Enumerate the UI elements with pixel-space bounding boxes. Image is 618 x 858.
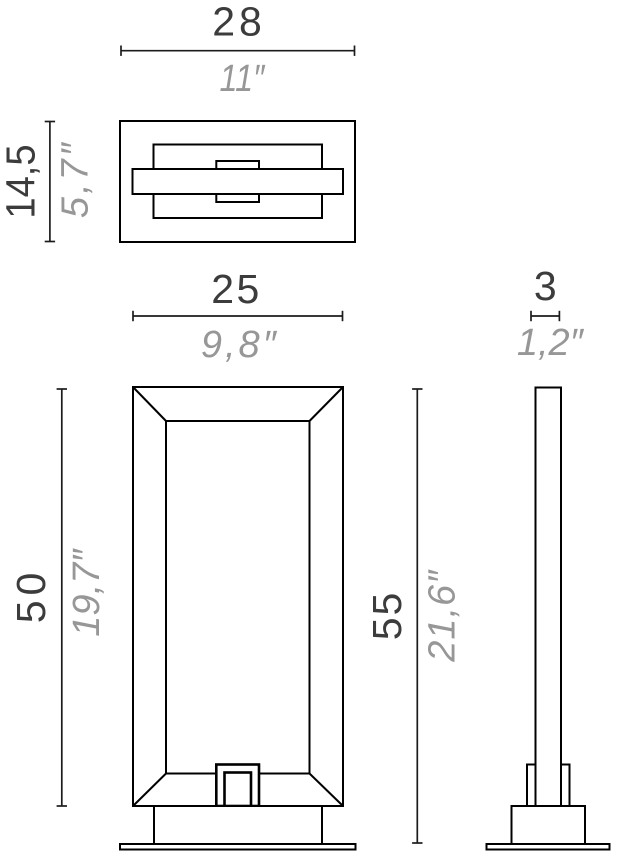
svg-text:21,6″: 21,6″ — [422, 569, 464, 663]
svg-text:9,8″: 9,8″ — [201, 324, 279, 366]
svg-text:19,7″: 19,7″ — [66, 548, 108, 637]
svg-text:55: 55 — [364, 591, 410, 641]
svg-text:50: 50 — [8, 568, 54, 624]
svg-text:1,2″: 1,2″ — [517, 322, 585, 364]
svg-text:28: 28 — [212, 0, 266, 44]
svg-text:14,5: 14,5 — [0, 144, 44, 218]
svg-text:11″: 11″ — [220, 57, 266, 99]
svg-text:25: 25 — [211, 266, 262, 312]
svg-text:3: 3 — [534, 263, 559, 309]
svg-text:5,7″: 5,7″ — [55, 140, 97, 218]
